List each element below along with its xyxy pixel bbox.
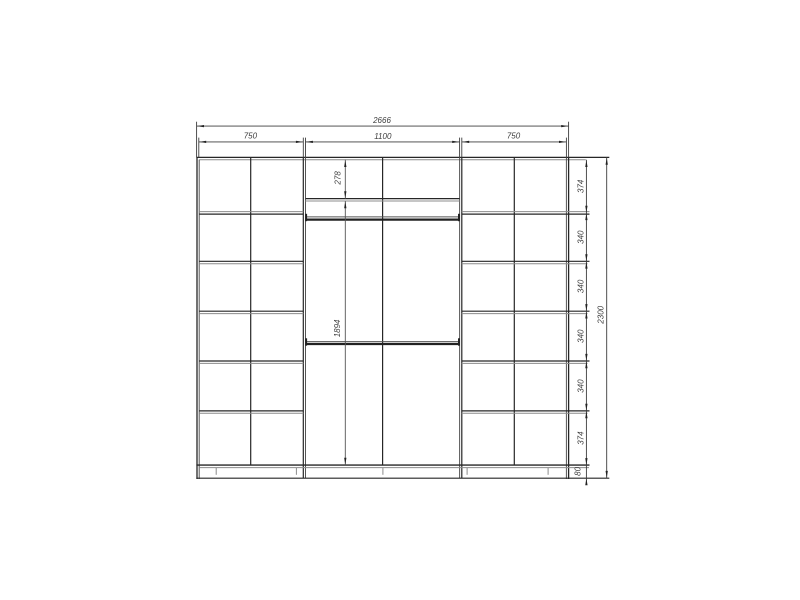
svg-text:340: 340 [577, 379, 586, 393]
svg-text:278: 278 [333, 171, 342, 186]
svg-text:1894: 1894 [333, 319, 342, 337]
svg-text:80: 80 [573, 466, 582, 475]
svg-text:1100: 1100 [374, 132, 392, 141]
svg-text:340: 340 [577, 329, 586, 343]
svg-text:374: 374 [577, 179, 586, 193]
svg-text:340: 340 [577, 279, 586, 293]
svg-text:750: 750 [244, 131, 258, 140]
svg-text:340: 340 [577, 230, 586, 244]
svg-text:2300: 2300 [596, 305, 605, 324]
svg-text:2666: 2666 [372, 116, 391, 125]
svg-text:750: 750 [507, 132, 521, 141]
svg-text:374: 374 [577, 431, 586, 445]
